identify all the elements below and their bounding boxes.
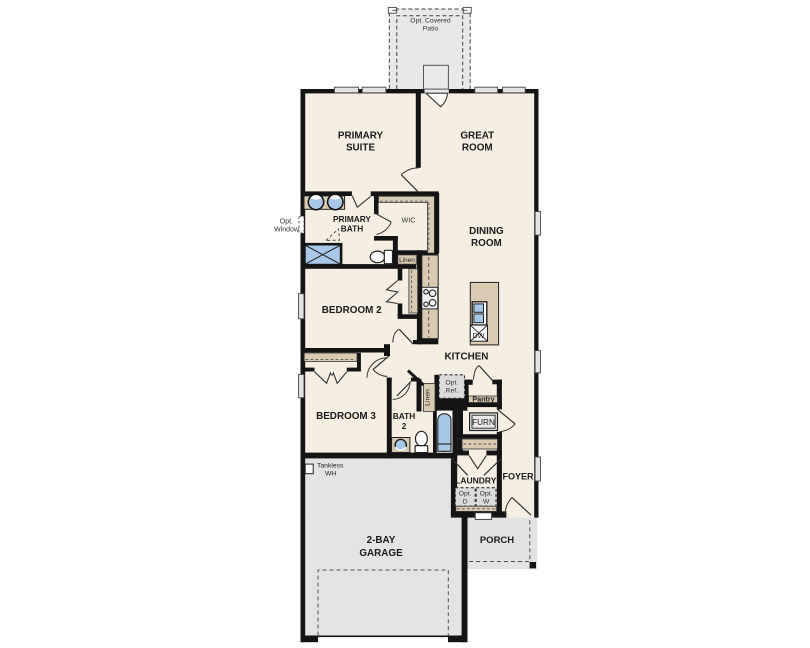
svg-text:Opt.: Opt. [280,219,293,226]
svg-text:PRIMARY: PRIMARY [333,214,371,224]
svg-text:GARAGE: GARAGE [359,548,403,559]
svg-text:W: W [483,499,490,506]
svg-text:FURN: FURN [472,418,495,427]
svg-text:Opt. Covered: Opt. Covered [410,18,451,25]
svg-text:PRIMARY: PRIMARY [338,131,384,142]
svg-text:Opt.: Opt. [445,380,458,387]
svg-text:Opt.: Opt. [480,491,493,498]
svg-text:Tankless: Tankless [317,463,344,470]
svg-text:FOYER: FOYER [502,472,534,482]
svg-text:DW: DW [473,333,485,340]
svg-text:ROOM: ROOM [462,143,493,154]
svg-text:WH: WH [325,471,336,478]
svg-text:SUITE: SUITE [346,143,375,154]
svg-text:D: D [463,499,468,506]
svg-text:Pantry: Pantry [472,394,494,403]
svg-text:.Ref..: .Ref.. [444,388,460,395]
svg-text:DINING: DINING [469,226,504,237]
svg-text:Linen: Linen [399,257,415,264]
svg-text:BATH: BATH [341,224,363,234]
svg-text:BEDROOM 2: BEDROOM 2 [322,305,382,316]
svg-text:Opt.: Opt. [459,491,472,498]
svg-text:Linen: Linen [425,389,432,406]
svg-text:ROOM: ROOM [471,238,502,249]
svg-text:GREAT: GREAT [460,131,494,142]
svg-text:Patio: Patio [423,26,439,33]
svg-text:KITCHEN: KITCHEN [445,352,489,363]
svg-text:LAUNDRY: LAUNDRY [455,476,497,486]
svg-text:PORCH: PORCH [480,535,514,546]
svg-text:2-BAY: 2-BAY [367,535,396,546]
svg-text:WIC: WIC [402,215,416,224]
svg-text:Window: Window [274,227,300,234]
svg-text:BATH: BATH [393,411,415,421]
svg-text:2: 2 [402,421,407,431]
svg-text:BEDROOM 3: BEDROOM 3 [316,411,376,422]
